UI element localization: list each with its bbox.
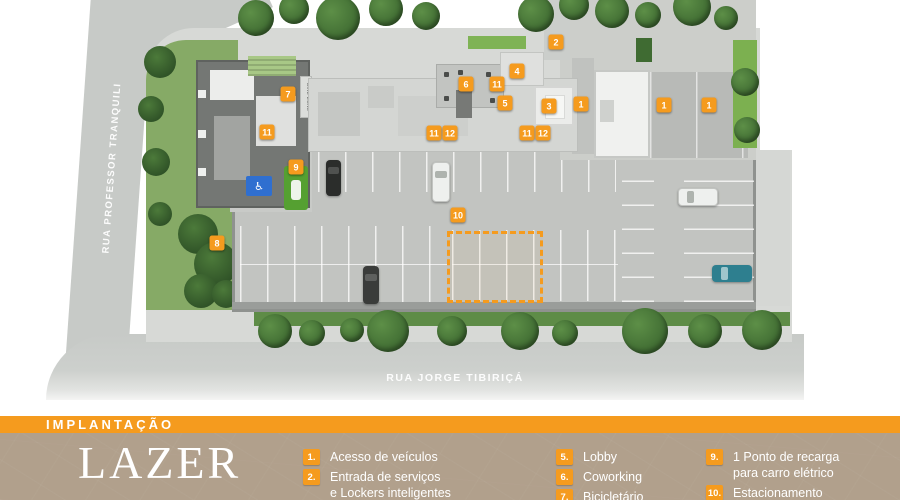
legend-text: e Lockers inteligentes [330,485,451,500]
legend-text: Entrada de serviços [330,469,451,485]
legend-item-coworking: 6. Coworking [556,469,643,485]
map-marker-10: 10 [451,208,466,223]
legend-column-2: 5. Lobby 6. Coworking 7. Bicicletário [556,449,643,500]
legend-item-entrada: 2. Entrada de serviços e Lockers intelig… [303,469,451,500]
legend-text: para carro elétrico [733,465,839,481]
section-title: IMPLANTAÇÃO [46,417,174,432]
map-marker-8: 8 [210,236,225,251]
map-marker-11: 11 [490,77,505,92]
map-marker-4: 4 [510,64,525,79]
legend-item-bicicletario: 7. Bicicletário [556,489,643,500]
legend-text: 1 Ponto de recarga [733,449,839,465]
legend-panel: LAZER 1. Acesso de veículos 2. Entrada d… [0,433,900,500]
section-banner: IMPLANTAÇÃO [0,416,900,433]
map-marker-12: 12 [443,126,458,141]
map-marker-1: 1 [574,97,589,112]
map-marker-3: 3 [542,99,557,114]
legend-column-3: 9. 1 Ponto de recarga para carro elétric… [706,449,839,500]
legend-item-acesso: 1. Acesso de veículos [303,449,451,465]
map-marker-2: 2 [549,35,564,50]
map-marker-9: 9 [289,160,304,175]
map-marker-7: 7 [281,87,296,102]
legend-badge-6: 6. [556,469,573,485]
map-marker-1: 1 [657,98,672,113]
legend-text: Coworking [583,469,642,485]
map-marker-11: 11 [520,126,535,141]
legend-text: Estacionamento [733,485,823,500]
legend-badge-7: 7. [556,489,573,500]
map-marker-1: 1 [702,98,717,113]
map-marker-11: 11 [260,125,275,140]
legend-column-1: 1. Acesso de veículos 2. Entrada de serv… [303,449,451,500]
legend-badge-10: 10. [706,485,723,500]
map-marker-11: 11 [427,126,442,141]
legend-badge-2: 2. [303,469,320,485]
map-marker-5: 5 [498,96,513,111]
legend-badge-9: 9. [706,449,723,465]
legend-item-recarga: 9. 1 Ponto de recarga para carro elétric… [706,449,839,481]
markers-layer: 2461175131111111211129108 [0,0,900,416]
legend-text: Lobby [583,449,617,465]
map-marker-6: 6 [459,77,474,92]
tab-lazer[interactable]: LAZER [78,436,241,489]
implantacao-page: BIKE ZONE [0,0,900,500]
site-plan: BIKE ZONE [0,0,900,416]
legend-badge-5: 5. [556,449,573,465]
map-marker-12: 12 [536,126,551,141]
legend-badge-1: 1. [303,449,320,465]
legend-item-estacionamento: 10. Estacionamento [706,485,839,500]
legend-text: Acesso de veículos [330,449,438,465]
legend-text: Bicicletário [583,489,643,500]
legend-item-lobby: 5. Lobby [556,449,643,465]
